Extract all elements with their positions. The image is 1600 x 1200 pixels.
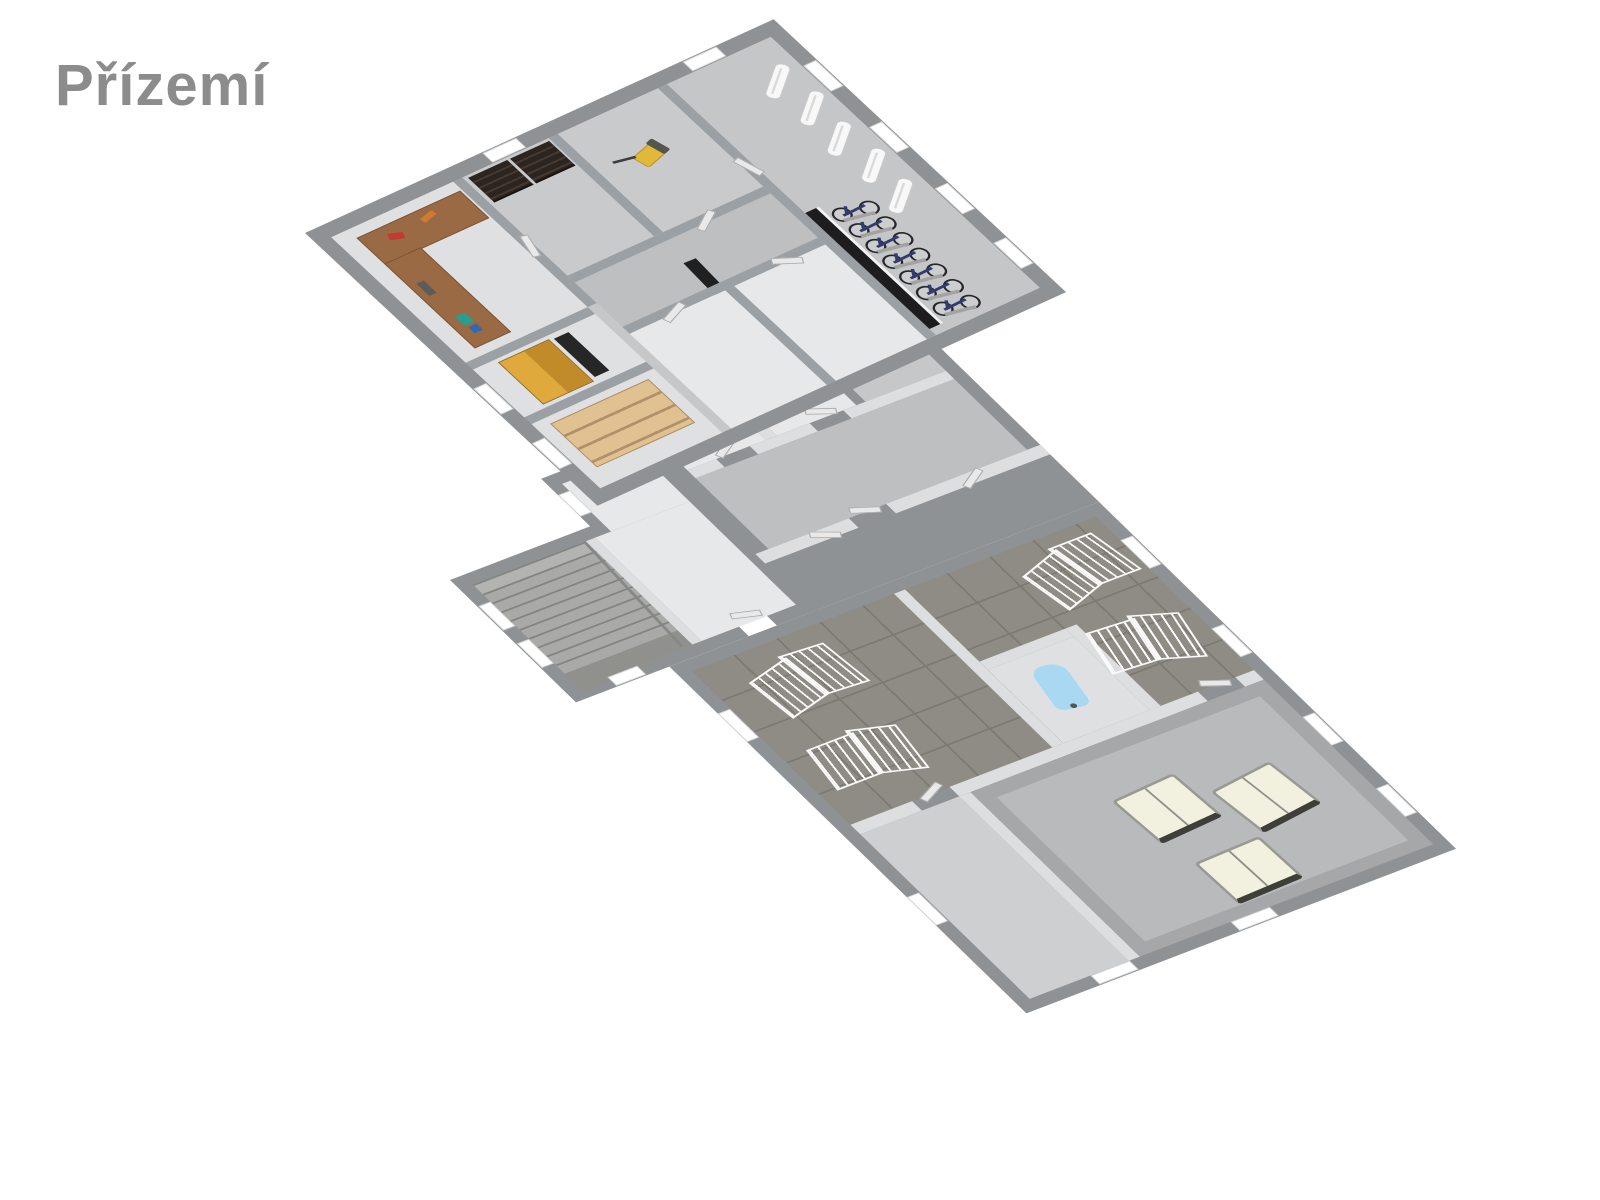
ski-rack-bar (771, 68, 782, 94)
ski-rack-bar (894, 183, 905, 209)
ski-rack-bar (867, 152, 878, 178)
ski-rack-bar (832, 125, 843, 151)
door-leaf (1198, 680, 1232, 687)
sofa-cushion-split (1242, 777, 1289, 813)
sofa-cushion-split (1144, 788, 1189, 825)
ski-rack-bar (805, 95, 816, 121)
floor-title: Přízemí (55, 52, 268, 119)
sofa-cushion-split (1228, 851, 1268, 886)
door-leaf (809, 532, 843, 538)
door-leaf (770, 257, 804, 265)
